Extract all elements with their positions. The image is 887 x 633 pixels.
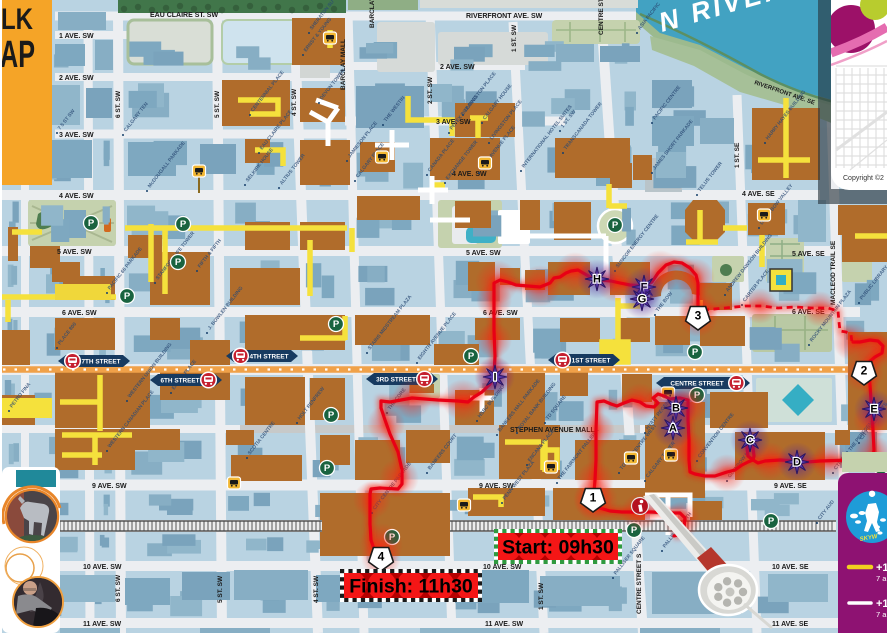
svg-text:9 AVE. SE: 9 AVE. SE [774,483,807,490]
svg-text:5 AVE. SE: 5 AVE. SE [792,251,825,258]
svg-text:10 AVE. SE: 10 AVE. SE [772,564,809,571]
svg-text:EAU CLAIRE ST. SW: EAU CLAIRE ST. SW [150,12,218,19]
svg-text:1 ST. SW: 1 ST. SW [538,582,545,610]
svg-text:1 ST. SE: 1 ST. SE [734,142,741,168]
svg-text:P: P [768,516,775,527]
svg-text:P: P [692,347,699,358]
svg-text:10 AVE. SW: 10 AVE. SW [83,564,122,571]
svg-text:5 AVE. SW: 5 AVE. SW [466,250,501,257]
svg-text:P: P [328,410,335,421]
svg-text:P: P [175,257,182,268]
svg-text:1 ST. SW: 1 ST. SW [511,24,518,52]
svg-text:9 AVE. SW: 9 AVE. SW [92,483,127,490]
svg-text:D: D [793,457,801,469]
svg-text:E: E [870,404,877,416]
svg-text:7 a: 7 a [876,610,887,619]
svg-text:6 AVE. SW: 6 AVE. SW [62,310,97,317]
svg-text:5 ST. SW: 5 ST. SW [217,575,224,603]
svg-text:H: H [593,274,601,286]
svg-text:A: A [669,423,677,435]
svg-text:CENTRE STREET: CENTRE STREET [598,0,605,35]
svg-text:5 AVE. SW: 5 AVE. SW [57,249,92,256]
svg-text:7TH STREET: 7TH STREET [81,358,120,365]
svg-text:Copyright ©2: Copyright ©2 [843,174,884,182]
svg-text:4 ST. SW: 4 ST. SW [313,575,320,603]
svg-text:BARCLAY PARADE: BARCLAY PARADE [369,0,376,28]
svg-text:6TH STREET: 6TH STREET [160,377,199,384]
svg-text:6 ST. SW: 6 ST. SW [115,574,122,602]
svg-text:1: 1 [590,491,597,505]
svg-text:P: P [324,463,331,474]
svg-text:7 a: 7 a [876,574,887,583]
svg-text:AP: AP [0,34,35,76]
svg-text:P: P [468,351,475,362]
svg-text:RIVERFRONT AVE. SW: RIVERFRONT AVE. SW [466,13,543,20]
svg-text:11 AVE. SW: 11 AVE. SW [83,621,122,628]
svg-text:3: 3 [695,309,702,323]
svg-text:2: 2 [861,364,868,378]
svg-text:P: P [612,220,619,231]
svg-text:Finish: 11h30: Finish: 11h30 [349,576,473,598]
svg-text:10 AVE. SW: 10 AVE. SW [483,564,522,571]
svg-text:4TH STREET: 4TH STREET [249,353,288,360]
svg-text:P: P [124,291,131,302]
svg-text:+1: +1 [876,562,887,574]
svg-text:P: P [180,219,187,230]
svg-text:CENTRE STREET S: CENTRE STREET S [636,553,643,614]
svg-text:P: P [333,319,340,330]
svg-text:BARCLAY MALL: BARCLAY MALL [340,39,347,90]
svg-text:4 AVE. SW: 4 AVE. SW [452,171,487,178]
svg-text:CENTRE STREET: CENTRE STREET [670,380,723,387]
svg-text:1 AVE. SW: 1 AVE. SW [59,33,94,40]
svg-text:3 AVE. SW: 3 AVE. SW [59,132,94,139]
svg-text:5 ST. SW: 5 ST. SW [214,90,221,118]
svg-text:G: G [638,294,647,306]
svg-text:6 ST. SW: 6 ST. SW [115,90,122,118]
svg-text:C: C [746,435,754,447]
svg-text:11 AVE. SW: 11 AVE. SW [485,621,524,628]
svg-text:2 ST. SW: 2 ST. SW [427,76,434,104]
svg-text:11 AVE. SE: 11 AVE. SE [772,621,809,628]
svg-text:4 AVE. SW: 4 AVE. SW [59,193,94,200]
svg-text:LK: LK [1,3,33,36]
svg-text:P: P [88,218,95,229]
svg-text:+1: +1 [876,598,887,610]
svg-text:4 AVE. SE: 4 AVE. SE [742,191,775,198]
svg-text:2 AVE. SW: 2 AVE. SW [59,75,94,82]
svg-text:I: I [493,372,496,384]
svg-text:2 AVE. SW: 2 AVE. SW [440,64,475,71]
svg-text:Start: 09h30: Start: 09h30 [502,537,614,559]
svg-text:4: 4 [378,550,385,564]
svg-text:1ST STREET: 1ST STREET [572,357,611,364]
